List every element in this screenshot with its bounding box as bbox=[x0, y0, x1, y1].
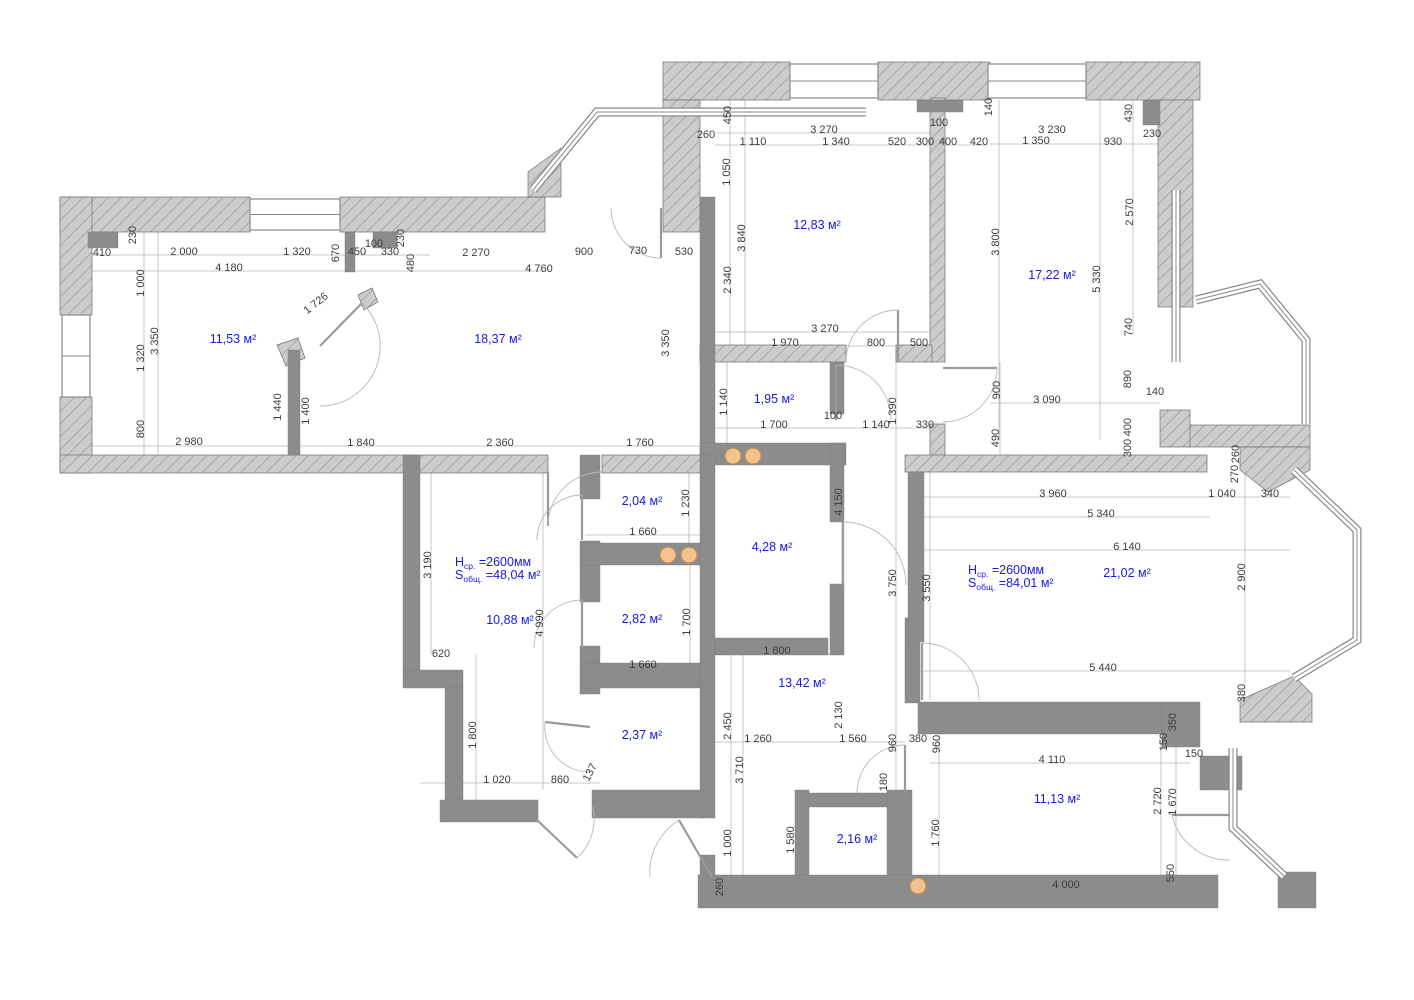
dimension-label: 410 bbox=[93, 247, 111, 259]
dimension-label: 1 800 bbox=[763, 645, 791, 657]
room-area-label: 11,53 м² bbox=[210, 332, 257, 346]
plumbing-point bbox=[910, 878, 926, 894]
dimension-label: 400 bbox=[1122, 418, 1134, 436]
dimension-label: 100 bbox=[824, 410, 842, 422]
dimension-label: 380 bbox=[909, 733, 927, 745]
door-swing-arc bbox=[1172, 815, 1230, 860]
dimension-label: 5 440 bbox=[1089, 662, 1117, 674]
dimension-label: 1 800 bbox=[467, 721, 479, 749]
bay-window bbox=[1196, 284, 1306, 424]
dimension-label: 2 270 bbox=[462, 247, 490, 259]
door-swing-arc bbox=[943, 368, 997, 422]
dimension-label: 670 bbox=[330, 244, 342, 262]
room-area-label: 18,37 м² bbox=[474, 332, 522, 346]
interior-wall-segment bbox=[698, 875, 1218, 908]
dimension-label: 180 bbox=[878, 773, 890, 791]
dimension-label: 2 900 bbox=[1236, 563, 1248, 591]
dimension-label: 3 710 bbox=[734, 756, 746, 784]
dimension-label: 1 050 bbox=[721, 158, 733, 186]
dimension-label: 1 000 bbox=[722, 829, 734, 857]
dimension-label: 300 bbox=[1122, 439, 1134, 457]
door-leaf bbox=[320, 303, 362, 346]
dimension-label: 2 130 bbox=[833, 701, 845, 729]
dimension-label: 2 570 bbox=[1124, 198, 1136, 226]
dimension-label: 1 440 bbox=[272, 393, 284, 421]
dimension-label: 230 bbox=[395, 229, 407, 247]
exterior-wall-segment bbox=[60, 197, 92, 315]
dimension-label: 3 550 bbox=[921, 574, 933, 602]
dimension-label: 2 360 bbox=[486, 437, 514, 449]
dimension-label: 5 340 bbox=[1087, 508, 1115, 520]
exterior-wall-segment bbox=[878, 62, 990, 100]
door-swing-arc bbox=[922, 643, 979, 700]
interior-wall-segment bbox=[808, 793, 890, 807]
bay-window-glass bbox=[1196, 284, 1306, 424]
dimension-label: 450 bbox=[722, 106, 734, 124]
dimension-label: 1 726 bbox=[302, 290, 331, 316]
door-swing-arc bbox=[537, 495, 582, 540]
dimension-label: 430 bbox=[1123, 104, 1135, 122]
room-area-label: 2,16 м² bbox=[837, 832, 878, 846]
dimension-label: 140 bbox=[983, 98, 995, 116]
dimension-label: 1 660 bbox=[629, 659, 657, 671]
exterior-wall-segment bbox=[663, 62, 790, 100]
dimension-label: 150 bbox=[1158, 733, 1170, 751]
dimension-label: 1 560 bbox=[839, 733, 867, 745]
dimension-label: 230 bbox=[1143, 128, 1161, 140]
dimension-label: 860 bbox=[551, 774, 569, 786]
door-swing-arc bbox=[846, 310, 898, 362]
dimension-label: 930 bbox=[1104, 136, 1122, 148]
dimension-label: 3 800 bbox=[990, 228, 1002, 256]
dimension-label: 260 bbox=[1230, 445, 1242, 463]
interior-wall-segment bbox=[795, 790, 809, 877]
dimension-label: 6 140 bbox=[1113, 541, 1141, 553]
dimension-label: 3 840 bbox=[736, 224, 748, 252]
dimension-label: 1 700 bbox=[760, 419, 788, 431]
dimension-label: 2 450 bbox=[722, 712, 734, 740]
plumbing-point bbox=[660, 547, 676, 563]
dimension-label: 500 bbox=[910, 337, 928, 349]
room-area-label: 17,22 м² bbox=[1028, 268, 1076, 282]
floor-plan-canvas: 4102 0001 3206704501003304 1802301 0001 … bbox=[0, 0, 1414, 1000]
dimension-label: 230 bbox=[127, 226, 139, 244]
dimension-label: 100 bbox=[930, 117, 948, 129]
dimension-label: 890 bbox=[1122, 370, 1134, 388]
dimension-label: 800 bbox=[135, 420, 147, 438]
dimension-label: 620 bbox=[432, 648, 450, 660]
dimension-label: 1 970 bbox=[771, 337, 799, 349]
dimension-label: 4 150 bbox=[833, 488, 845, 516]
interior-wall-segment bbox=[403, 455, 420, 673]
dimension-label: 960 bbox=[887, 734, 899, 752]
room-area-label: 21,02 м² bbox=[1103, 566, 1151, 580]
interior-wall-segment bbox=[445, 688, 463, 804]
dimension-label: 340 bbox=[1261, 488, 1279, 500]
interior-wall-segment bbox=[700, 197, 715, 455]
dimension-label: 550 bbox=[1165, 864, 1177, 882]
interior-wall-segment bbox=[1143, 100, 1160, 125]
room-area-labels: 11,53 м²18,37 м²12,83 м²17,22 м²1,95 м²2… bbox=[210, 218, 1151, 846]
dimension-label: 4 760 bbox=[525, 263, 553, 275]
dimension-label: 1 390 bbox=[887, 397, 899, 425]
interior-wall-segment bbox=[887, 790, 912, 877]
dimension-label: 2 720 bbox=[1152, 787, 1164, 815]
dimension-label: 3 350 bbox=[660, 329, 672, 357]
dimension-label: 260 bbox=[714, 878, 726, 896]
door-leaf bbox=[679, 820, 712, 877]
exterior-wall-segment bbox=[340, 197, 545, 232]
interior-wall-segment bbox=[917, 100, 963, 112]
dimension-label: 900 bbox=[991, 381, 1003, 399]
exterior-wall-segment bbox=[663, 100, 700, 232]
dimension-label: 1 260 bbox=[744, 733, 772, 745]
dimension-label: 5 330 bbox=[1091, 265, 1103, 293]
exterior-wall-segment bbox=[1086, 62, 1200, 100]
room-area-label: 13,42 м² bbox=[778, 676, 826, 690]
door-leaf bbox=[537, 820, 577, 858]
dimension-label: 1 110 bbox=[740, 136, 767, 148]
interior-wall-segment bbox=[1278, 872, 1316, 908]
dimension-label: 530 bbox=[675, 246, 693, 258]
room-area-label: 10,88 м² bbox=[486, 613, 534, 627]
dimension-label: 1 700 bbox=[681, 608, 693, 636]
interior-wall-segment bbox=[700, 455, 715, 818]
dimension-label: 2 000 bbox=[170, 246, 198, 258]
bay-window-glass-line bbox=[1196, 284, 1306, 424]
interior-wall-segment bbox=[288, 350, 300, 455]
dimension-label: 137 bbox=[581, 762, 600, 784]
exterior-wall-segment bbox=[1240, 676, 1312, 722]
dimension-label: 1 230 bbox=[680, 489, 692, 517]
exterior-wall-segment bbox=[1160, 410, 1190, 447]
dimension-label: 380 bbox=[1236, 684, 1248, 702]
dimension-label: 260 bbox=[697, 129, 715, 141]
dimension-label: 3 270 bbox=[810, 124, 838, 136]
height-area-annotations: Hср. =2600ммSобщ. =48,04 м²Hср. =2600ммS… bbox=[455, 555, 1054, 592]
dimension-label: 450 bbox=[348, 246, 366, 258]
dimension-label: 270 bbox=[1229, 465, 1241, 483]
dimension-label: 960 bbox=[931, 735, 943, 753]
dimension-label: 1 020 bbox=[483, 774, 511, 786]
dimension-label: 420 bbox=[970, 136, 988, 148]
dimension-label: 4 180 bbox=[215, 262, 243, 274]
door-swing-arc bbox=[577, 807, 594, 858]
room-area-label: 2,37 м² bbox=[622, 728, 663, 742]
dimension-label: 1 320 bbox=[135, 344, 147, 372]
door-swing-arc bbox=[545, 722, 590, 772]
dimension-label: 490 bbox=[990, 429, 1002, 447]
dimension-label: 1 400 bbox=[300, 397, 312, 425]
dimension-label: 3 960 bbox=[1039, 488, 1067, 500]
dimension-label: 1 140 bbox=[718, 388, 730, 416]
dimension-label: 3 750 bbox=[887, 569, 899, 597]
dimension-label: 2 980 bbox=[175, 436, 203, 448]
dimension-label: 150 bbox=[1185, 748, 1203, 760]
interior-wall-segment bbox=[908, 472, 924, 642]
dimension-label: 900 bbox=[575, 246, 593, 258]
door-swing-arc bbox=[320, 303, 380, 406]
dimension-label: 4 990 bbox=[534, 609, 546, 637]
interior-wall-segment bbox=[592, 790, 704, 818]
floor-plan-page: 4102 0001 3206704501003304 1802301 0001 … bbox=[0, 0, 1414, 1000]
dimension-label: 1 140 bbox=[862, 419, 890, 431]
interior-wall-segment bbox=[830, 584, 844, 655]
interior-wall-segment bbox=[700, 443, 846, 465]
dimension-label: 480 bbox=[405, 254, 417, 272]
interior-wall-segment bbox=[403, 670, 463, 688]
dimension-label: 400 bbox=[939, 136, 957, 148]
door-leaf bbox=[545, 722, 590, 727]
exterior-wall-segment bbox=[358, 288, 378, 310]
dimension-label: 800 bbox=[867, 337, 885, 349]
dimension-label: 1 340 bbox=[822, 136, 850, 148]
dimension-label: 330 bbox=[916, 419, 934, 431]
dimension-label: 520 bbox=[888, 136, 906, 148]
dimension-label: 350 bbox=[1167, 713, 1179, 731]
dimension-label: 1 840 bbox=[347, 437, 375, 449]
room-area-label: 2,04 м² bbox=[622, 494, 663, 508]
room-area-label: 1,95 м² bbox=[754, 392, 795, 406]
dimension-label: 1 760 bbox=[930, 819, 942, 847]
room-area-label: 11,13 м² bbox=[1034, 792, 1081, 806]
bay-window-glass bbox=[1294, 470, 1357, 678]
dimension-label: 1 660 bbox=[629, 526, 657, 538]
interior-wall-segment bbox=[88, 232, 118, 248]
room-area-label: 12,83 м² bbox=[793, 218, 841, 232]
dimension-label: 1 320 bbox=[283, 246, 311, 258]
dimension-label: 2 340 bbox=[722, 266, 734, 294]
dimension-label: 3 090 bbox=[1033, 394, 1061, 406]
exterior-wall-segment bbox=[60, 455, 548, 473]
dimension-label: 1 580 bbox=[785, 826, 797, 854]
exterior-wall-segment bbox=[602, 455, 702, 473]
interior-wall-segment bbox=[580, 455, 600, 499]
room-area-label: 4,28 м² bbox=[752, 540, 793, 554]
dimension-label: 1 760 bbox=[626, 437, 654, 449]
exterior-wall-segment bbox=[1188, 425, 1310, 447]
plumbing-point bbox=[745, 448, 761, 464]
dimension-label: 4 110 bbox=[1039, 754, 1066, 766]
interior-wall-segment bbox=[918, 702, 1162, 734]
door-swing-arc bbox=[836, 365, 891, 420]
interior-wall-segment bbox=[440, 800, 538, 822]
dimension-label: 730 bbox=[629, 245, 647, 257]
dimension-label: 3 350 bbox=[149, 327, 161, 355]
dimension-label: 1 000 bbox=[135, 269, 147, 297]
dimension-label: 1 350 bbox=[1022, 135, 1050, 147]
dimension-label: 740 bbox=[1123, 318, 1135, 336]
dimension-label: 3 270 bbox=[811, 323, 839, 335]
plumbing-point bbox=[681, 547, 697, 563]
dimension-label: 3 190 bbox=[422, 551, 434, 579]
door-swing-arc bbox=[650, 820, 679, 877]
dimension-label: 140 bbox=[1146, 386, 1164, 398]
plumbing-point bbox=[725, 448, 741, 464]
exterior-wall-segment bbox=[905, 455, 1207, 472]
dimension-label: 4 000 bbox=[1052, 879, 1080, 891]
dimension-label: 300 bbox=[916, 136, 934, 148]
dimension-label: 1 040 bbox=[1208, 488, 1236, 500]
room-area-label: 2,82 м² bbox=[622, 612, 663, 626]
dimension-label: 1 670 bbox=[1167, 788, 1179, 816]
